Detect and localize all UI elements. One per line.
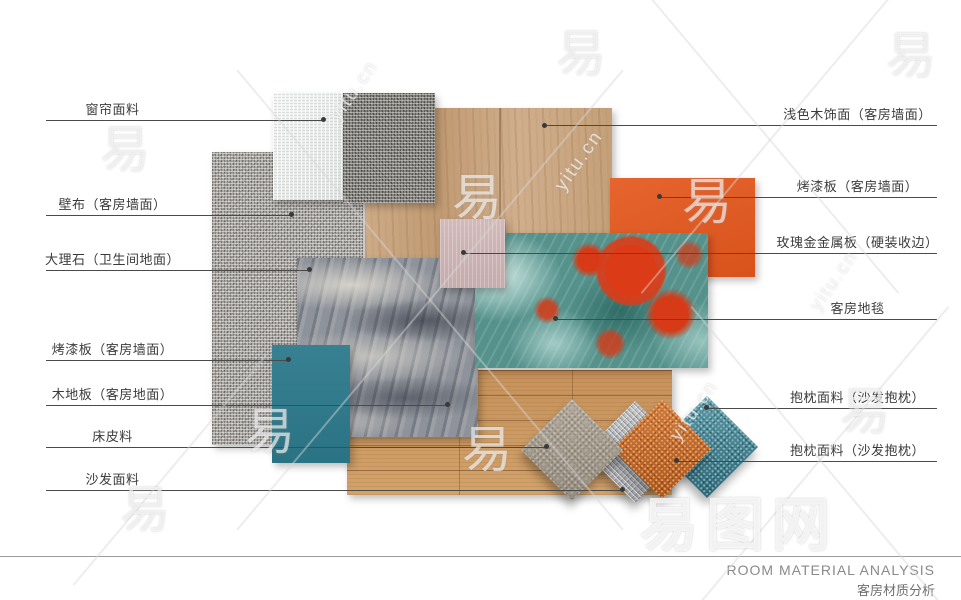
leader-line bbox=[544, 125, 937, 126]
watermark-glyph: 易 bbox=[886, 16, 936, 88]
leader-line bbox=[46, 405, 448, 406]
label-cushion-fabric-1: 抱枕面料（沙发抱枕） bbox=[765, 389, 950, 407]
leader-line bbox=[677, 461, 937, 462]
leader-line bbox=[46, 490, 623, 491]
leader-dot bbox=[307, 267, 312, 272]
label-marble: 大理石（卫生间地面） bbox=[15, 251, 210, 269]
leader-dot bbox=[321, 117, 326, 122]
label-bed-leather: 床皮料 bbox=[15, 428, 210, 446]
label-rose-gold-metal: 玫瑰金金属板（硬装收边） bbox=[765, 234, 950, 252]
leader-dot bbox=[542, 123, 547, 128]
label-sofa-fabric: 沙发面料 bbox=[15, 471, 210, 489]
leader-line bbox=[46, 120, 324, 121]
swatch-dark-woven-fabric bbox=[343, 93, 435, 203]
leader-line bbox=[463, 253, 937, 254]
watermark-glyph: 易 bbox=[556, 14, 606, 86]
footer-divider bbox=[0, 556, 961, 557]
label-cushion-fabric-2: 抱枕面料（沙发抱枕） bbox=[765, 442, 950, 460]
label-teal-lacquer: 烤漆板（客房墙面） bbox=[15, 341, 210, 359]
leader-dot bbox=[289, 212, 294, 217]
leader-dot bbox=[445, 402, 450, 407]
label-wall-fabric: 壁布（客房墙面） bbox=[15, 196, 210, 214]
label-light-wood-veneer: 浅色木饰面（客房墙面） bbox=[765, 106, 950, 124]
leader-dot bbox=[674, 458, 679, 463]
leader-line bbox=[46, 360, 289, 361]
leader-line bbox=[659, 197, 937, 198]
leader-line bbox=[707, 408, 937, 409]
footer-title-en: ROOM MATERIAL ANALYSIS bbox=[727, 562, 935, 578]
swatch-teal-lacquer-panel bbox=[272, 345, 350, 463]
label-curtain-fabric: 窗帘面料 bbox=[15, 101, 210, 119]
leader-dot bbox=[620, 487, 625, 492]
leader-line bbox=[555, 319, 937, 320]
leader-line bbox=[46, 215, 292, 216]
leader-dot bbox=[553, 316, 558, 321]
leader-dot bbox=[461, 250, 466, 255]
footer-title-zh: 客房材质分析 bbox=[857, 580, 935, 599]
leader-dot bbox=[704, 405, 709, 410]
label-wood-floor: 木地板（客房地面） bbox=[15, 386, 210, 404]
leader-line bbox=[46, 447, 547, 448]
swatch-curtain-fabric bbox=[273, 93, 343, 200]
leader-line bbox=[46, 270, 310, 271]
leader-dot bbox=[544, 444, 549, 449]
label-orange-lacquer: 烤漆板（客房墙面） bbox=[765, 178, 950, 196]
label-guest-room-carpet: 客房地毯 bbox=[765, 300, 950, 318]
material-board-canvas: 窗帘面料 壁布（客房墙面） 大理石（卫生间地面） 烤漆板（客房墙面） 木地板（客… bbox=[0, 0, 961, 600]
leader-dot bbox=[286, 357, 291, 362]
leader-dot bbox=[657, 194, 662, 199]
